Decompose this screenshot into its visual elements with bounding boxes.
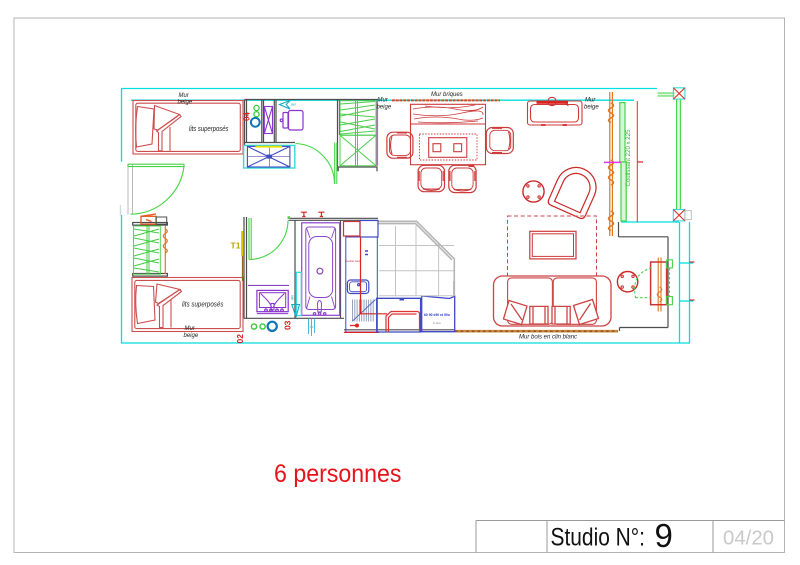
svg-text:lits superposés: lits superposés xyxy=(182,300,224,309)
svg-text:T1: T1 xyxy=(231,241,241,251)
svg-text:lits superposés: lits superposés xyxy=(189,124,229,133)
svg-text:60 90 x90 et 90u: 60 90 x90 et 90u xyxy=(424,313,450,317)
svg-text:aer: aer xyxy=(291,103,297,107)
svg-text:Studio N°:: Studio N°: xyxy=(551,523,646,551)
svg-text:Mur: Mur xyxy=(378,98,389,104)
svg-text:Mur briques: Mur briques xyxy=(431,92,463,98)
svg-text:Mur bois en clin blanc: Mur bois en clin blanc xyxy=(519,335,577,341)
svg-text:04/20: 04/20 xyxy=(723,528,774,550)
svg-text:beige: beige xyxy=(178,100,193,106)
svg-text:02: 02 xyxy=(235,334,245,344)
svg-text:beige: beige xyxy=(584,105,599,111)
svg-text:Mur: Mur xyxy=(585,98,596,104)
svg-text:AR: AR xyxy=(291,295,295,300)
svg-text:9: 9 xyxy=(655,517,673,554)
svg-text:beige: beige xyxy=(184,333,199,339)
svg-text:meuble haut: meuble haut xyxy=(345,259,361,263)
svg-text:6 personnes: 6 personnes xyxy=(274,460,402,488)
svg-text:Mur: Mur xyxy=(185,326,196,332)
svg-text:beige: beige xyxy=(377,105,392,111)
svg-text:Mur: Mur xyxy=(179,93,190,99)
svg-text:03: 03 xyxy=(283,320,293,330)
svg-text:04: 04 xyxy=(242,112,251,121)
svg-text:Coulissant 220 x 225: Coulissant 220 x 225 xyxy=(625,129,632,186)
svg-text:lv lave: lv lave xyxy=(433,321,441,325)
